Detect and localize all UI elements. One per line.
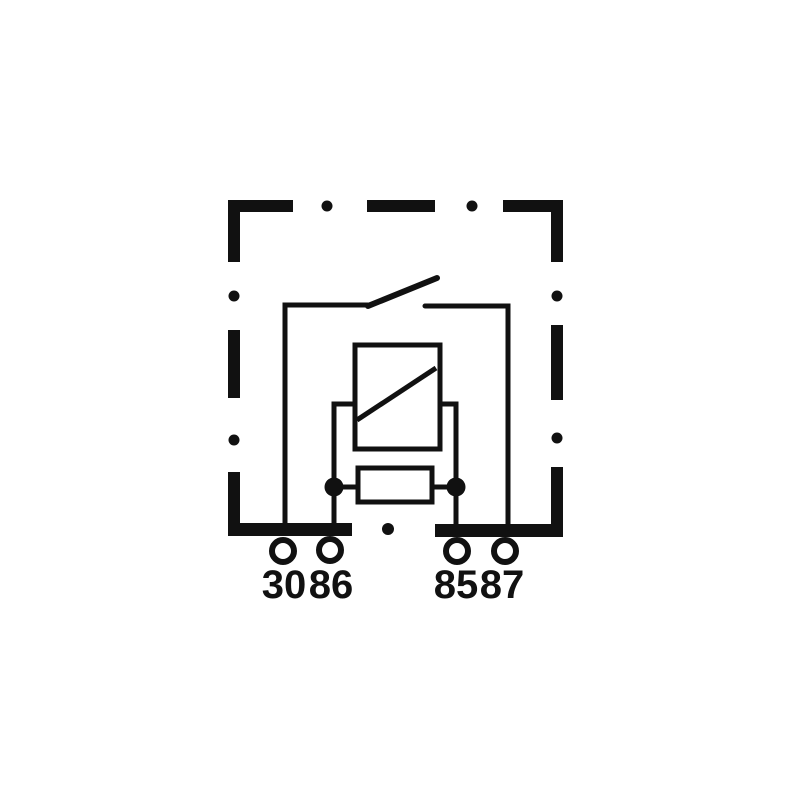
pin87-conductor (425, 306, 508, 528)
terminal-label-85: 85 (434, 563, 479, 607)
border-corner-dash (228, 200, 240, 262)
terminal-label-30: 30 (262, 563, 307, 607)
resistor-box (358, 468, 432, 502)
terminal-label-86: 86 (309, 563, 354, 607)
relay-pinout-diagram: 30 86 85 87 (0, 0, 800, 800)
terminal-pin-85 (446, 540, 468, 562)
terminal-pin-30 (272, 540, 294, 562)
border-dot (322, 201, 333, 212)
coil-diagonal (357, 368, 436, 420)
border-dot (552, 291, 563, 302)
resistor (336, 468, 454, 502)
border-dash (228, 330, 240, 398)
border-dash (367, 200, 435, 212)
border-dot (229, 435, 240, 446)
coil-lead-86 (334, 404, 355, 524)
dashed-enclosure (228, 200, 563, 537)
terminal-pin-86 (319, 539, 341, 561)
terminal-label-87: 87 (480, 563, 525, 607)
border-corner-dash (551, 200, 563, 262)
border-dot (552, 433, 563, 444)
relay-coil (355, 345, 440, 449)
switch-blade (368, 278, 437, 306)
schematic-svg: 30 86 85 87 (0, 0, 800, 800)
switch-contact (285, 278, 508, 528)
terminal-pin-87 (494, 540, 516, 562)
terminal-labels: 30 86 85 87 (262, 563, 525, 607)
terminal-pins (272, 539, 516, 562)
border-dash (551, 325, 563, 400)
coil-box (355, 345, 440, 449)
border-dot (467, 201, 478, 212)
junction-dot-left (325, 478, 344, 497)
border-dot (382, 523, 394, 535)
junction-dot-right (447, 478, 466, 497)
border-dot (229, 291, 240, 302)
